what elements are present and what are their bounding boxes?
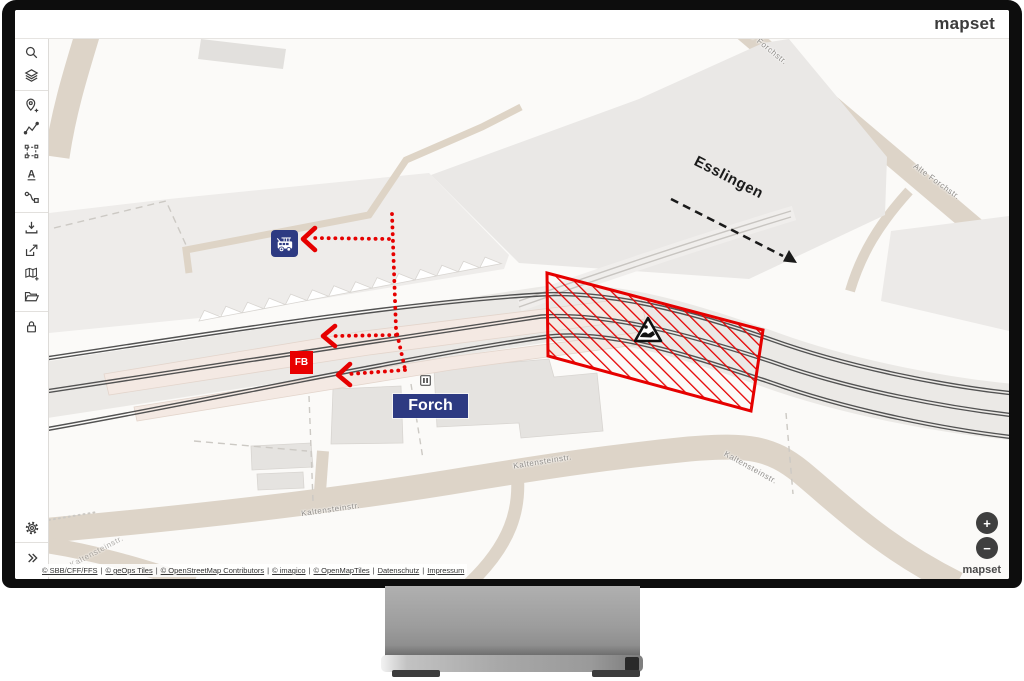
draw-line-icon[interactable] (20, 117, 43, 140)
monitor-foot (592, 670, 640, 677)
sidebar-divider (15, 212, 48, 213)
monitor-stand-neck (385, 586, 640, 658)
page: mapset (0, 0, 1024, 681)
stop-code-badge[interactable]: FB (290, 351, 313, 374)
share-icon[interactable] (20, 239, 43, 262)
map-attribution[interactable]: © SBB/CFF/FFS|© geOps Tiles|© OpenStreet… (39, 564, 467, 577)
map-canvas[interactable]: Alte Forchstr. Alte Forchstr. Kaltenstei… (49, 39, 1009, 579)
settings-icon[interactable] (20, 516, 43, 539)
svg-text:A: A (28, 168, 36, 180)
sidebar-divider (15, 311, 48, 312)
mapset-logo: mapset (934, 14, 995, 34)
monitor-foot (392, 670, 440, 677)
zoom-in-button[interactable]: + (976, 512, 998, 534)
add-map-icon[interactable] (20, 262, 43, 285)
download-icon[interactable] (20, 216, 43, 239)
attribution-link[interactable]: Impressum (427, 566, 464, 575)
station-label-forch[interactable]: Forch (393, 394, 468, 418)
zoom-out-button[interactable]: − (976, 537, 998, 559)
layers-icon[interactable] (20, 64, 43, 87)
station-access-icon (420, 373, 431, 391)
mapset-watermark: mapset (962, 564, 1001, 576)
attribution-link[interactable]: © imagico (272, 566, 305, 575)
route-connection-icon[interactable] (20, 186, 43, 209)
bus-stop-icon[interactable] (271, 230, 298, 257)
attribution-link[interactable]: © OpenStreetMap Contributors (161, 566, 265, 575)
app-window: mapset (15, 10, 1009, 579)
zoom-controls: + − (976, 512, 998, 559)
map-graphics (49, 39, 1009, 579)
toolbar-sidebar: A (15, 39, 49, 579)
attribution-link[interactable]: © OpenMapTiles (314, 566, 370, 575)
top-bar: mapset (15, 10, 1009, 39)
attribution-link[interactable]: Datenschutz (378, 566, 420, 575)
attribution-link[interactable]: © geOps Tiles (105, 566, 152, 575)
sidebar-divider (15, 90, 48, 91)
add-location-icon[interactable] (20, 94, 43, 117)
lock-icon[interactable] (20, 315, 43, 338)
sidebar-divider (15, 542, 48, 543)
folder-icon[interactable] (20, 285, 43, 308)
monitor-frame: mapset (2, 0, 1022, 588)
monitor-stand-notch (625, 657, 639, 671)
attribution-link[interactable]: © SBB/CFF/FFS (42, 566, 98, 575)
app-body: A (15, 39, 1009, 579)
search-icon[interactable] (20, 41, 43, 64)
select-area-icon[interactable] (20, 140, 43, 163)
text-tool-icon[interactable]: A (20, 163, 43, 186)
